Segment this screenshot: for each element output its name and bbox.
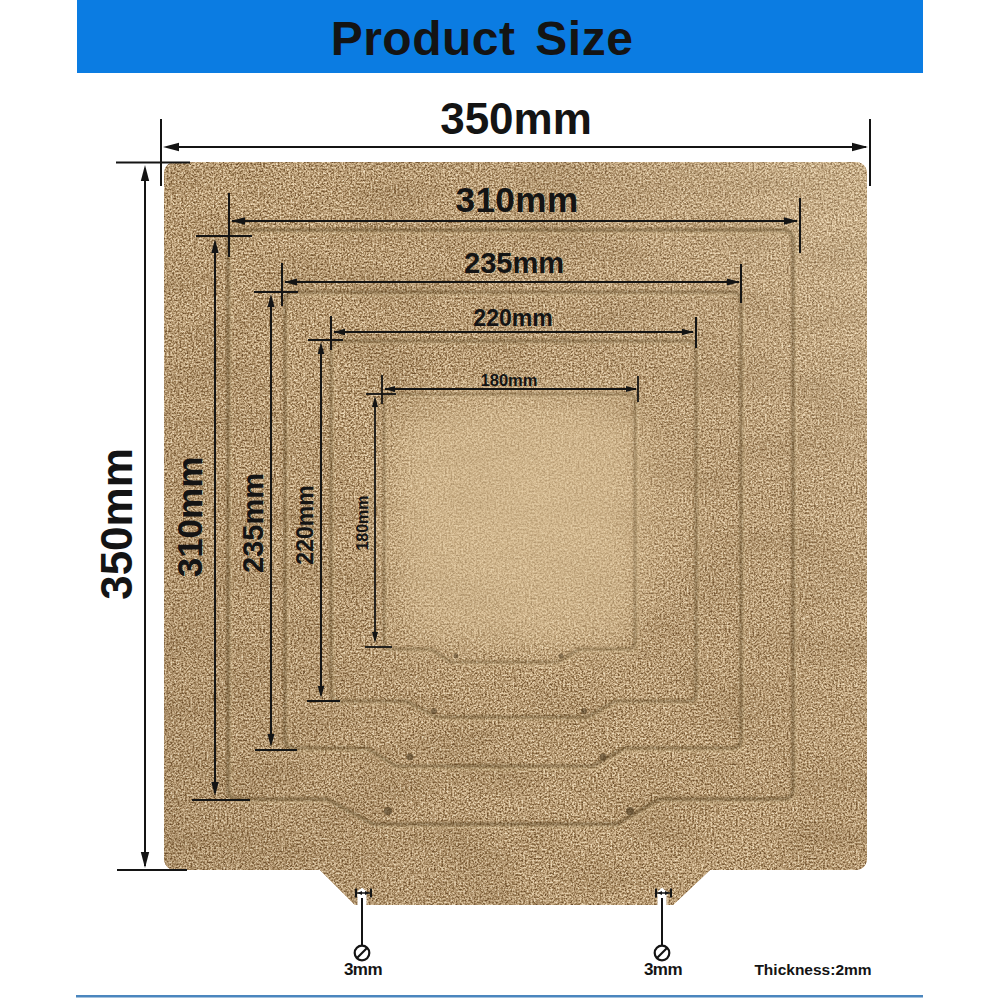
svg-text:180mm: 180mm (481, 371, 538, 389)
svg-text:310mm: 310mm (455, 180, 578, 219)
svg-text:3mm: 3mm (644, 960, 683, 979)
svg-text:Thickness:2mm: Thickness:2mm (754, 961, 871, 978)
svg-text:3mm: 3mm (344, 960, 383, 979)
svg-text:350mm: 350mm (92, 448, 141, 600)
svg-text:Product Size: Product Size (331, 12, 634, 65)
svg-text:310mm: 310mm (170, 457, 209, 578)
svg-text:350mm: 350mm (440, 94, 592, 143)
svg-text:235mm: 235mm (464, 247, 564, 279)
svg-text:235mm: 235mm (237, 473, 269, 573)
svg-text:180mm: 180mm (354, 495, 371, 550)
svg-text:220mm: 220mm (473, 305, 552, 331)
svg-text:220mm: 220mm (292, 485, 318, 564)
